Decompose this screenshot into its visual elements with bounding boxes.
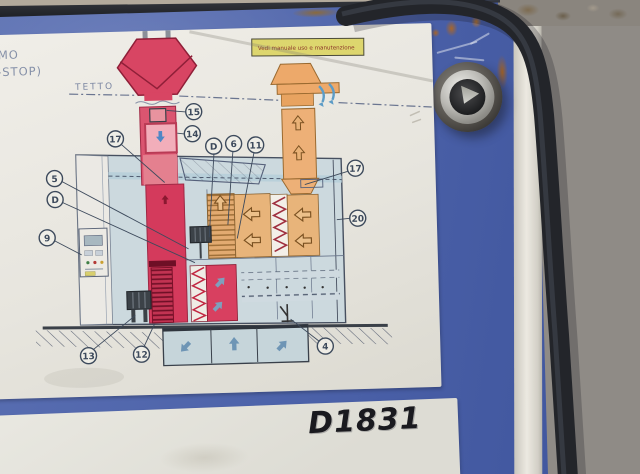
rust-stain: [432, 29, 440, 37]
rust-stain: [471, 16, 481, 28]
control-screen: [84, 235, 102, 245]
callout-13: 13: [82, 352, 95, 362]
callout-5: 5: [51, 175, 58, 185]
callout-17-right: 17: [349, 165, 362, 175]
callout-14: 14: [186, 130, 199, 140]
callout-20: 20: [351, 214, 364, 224]
roof-label: TETTO: [74, 82, 114, 93]
machine-diagram-svg: LIMO NT-STOP) TETTO Vedi manuale uso e m…: [0, 23, 442, 399]
callout-11: 11: [249, 141, 262, 151]
scratch-mark: [470, 32, 490, 45]
panel-code-text: D1831: [307, 401, 422, 441]
pencil-marks: [410, 111, 421, 122]
roof-line: [69, 84, 432, 117]
smudge: [159, 441, 250, 474]
corner-text-line1: LIMO: [0, 48, 19, 63]
lock-knob: [431, 61, 503, 133]
photo-scene: LIMO NT-STOP) TETTO Vedi manuale uso e m…: [0, 0, 640, 474]
callout-15: 15: [187, 108, 200, 118]
panel-door: LIMO NT-STOP) TETTO Vedi manuale uso e m…: [0, 0, 549, 474]
callout-12: 12: [135, 351, 148, 361]
damper-box-15: [150, 108, 166, 121]
smudge: [44, 367, 125, 389]
exhaust-cell: [206, 265, 238, 322]
intake-cap: [270, 63, 321, 84]
code-sticker: D1831: [0, 398, 461, 474]
callout-d-left: D: [51, 196, 59, 206]
callout-4: 4: [322, 343, 329, 353]
callout-9: 9: [44, 234, 51, 244]
rust-stain: [445, 20, 457, 36]
scratch-mark: [454, 57, 484, 62]
callout-17-left: 17: [109, 135, 122, 145]
diagram-sticker: LIMO NT-STOP) TETTO Vedi manuale uso e m…: [0, 23, 442, 399]
corner-text-line2: NT-STOP): [0, 64, 42, 80]
exhaust-cap: [117, 38, 198, 96]
control-box: [79, 228, 108, 277]
exhaust-grille-bar: [149, 260, 176, 267]
exhaust-louvers: [151, 267, 174, 323]
callout-6: 6: [230, 140, 237, 150]
gravel-patch: [498, 0, 640, 26]
roof-break-wave: [135, 101, 179, 105]
panel-trim-stripe: [513, 0, 542, 474]
callout-d-top: D: [210, 143, 218, 153]
rust-stain: [293, 8, 339, 18]
